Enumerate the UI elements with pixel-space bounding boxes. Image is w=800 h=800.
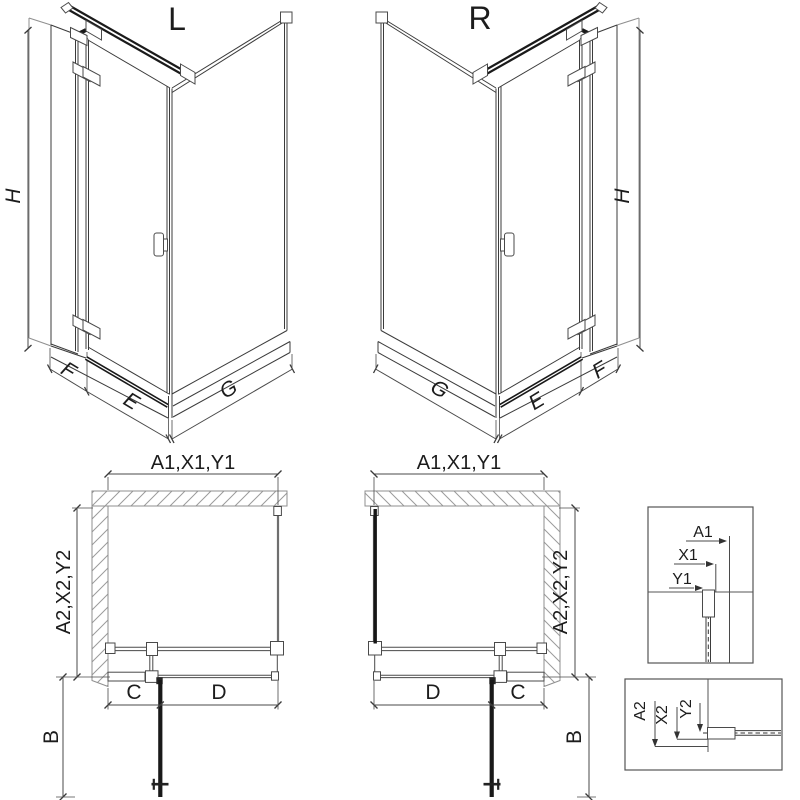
dim-label-a1x1y1: A1,X1,Y1 <box>151 452 236 474</box>
diagram-canvas: L H F E G R H F E G <box>0 0 800 800</box>
dim-label-a2x2y2: A2,X2,Y2 <box>550 550 572 635</box>
dim-label-b: B <box>40 730 63 744</box>
glass-profile-section <box>708 728 736 740</box>
shower-enclosure-diagram: L H F E G R H F E G <box>0 0 800 800</box>
dim-label-h: H <box>611 188 634 204</box>
wall-profile-cap <box>274 507 282 516</box>
wall-side-hatched <box>92 506 108 687</box>
dim-label-h: H <box>2 188 25 204</box>
dim-label-y1: Y1 <box>672 571 692 588</box>
dim-label-y2: Y2 <box>678 699 695 719</box>
dim-label-x2: X2 <box>654 705 671 725</box>
view-label-l: L <box>168 1 186 37</box>
dim-label-d: D <box>211 681 226 704</box>
dim-label-b: B <box>563 730 586 744</box>
detail-box-width: A1 X1 Y1 <box>648 507 753 663</box>
corner-cap <box>281 12 293 23</box>
detail-box-depth: A2 X2 Y2 <box>625 679 782 770</box>
dim-label-a2: A2 <box>632 701 649 721</box>
dim-label-c: C <box>510 681 525 704</box>
glass-profile-section <box>703 590 715 617</box>
dim-label-c: C <box>126 681 141 704</box>
dim-label-x1: X1 <box>678 547 698 564</box>
dim-label-a1: A1 <box>693 524 713 541</box>
dim-label-a1x1y1: A1,X1,Y1 <box>417 452 502 474</box>
dim-label-d: D <box>425 681 440 704</box>
wall-top-hatched <box>92 491 287 506</box>
view-label-r: R <box>468 0 491 36</box>
dim-label-a2x2y2: A2,X2,Y2 <box>53 550 75 635</box>
